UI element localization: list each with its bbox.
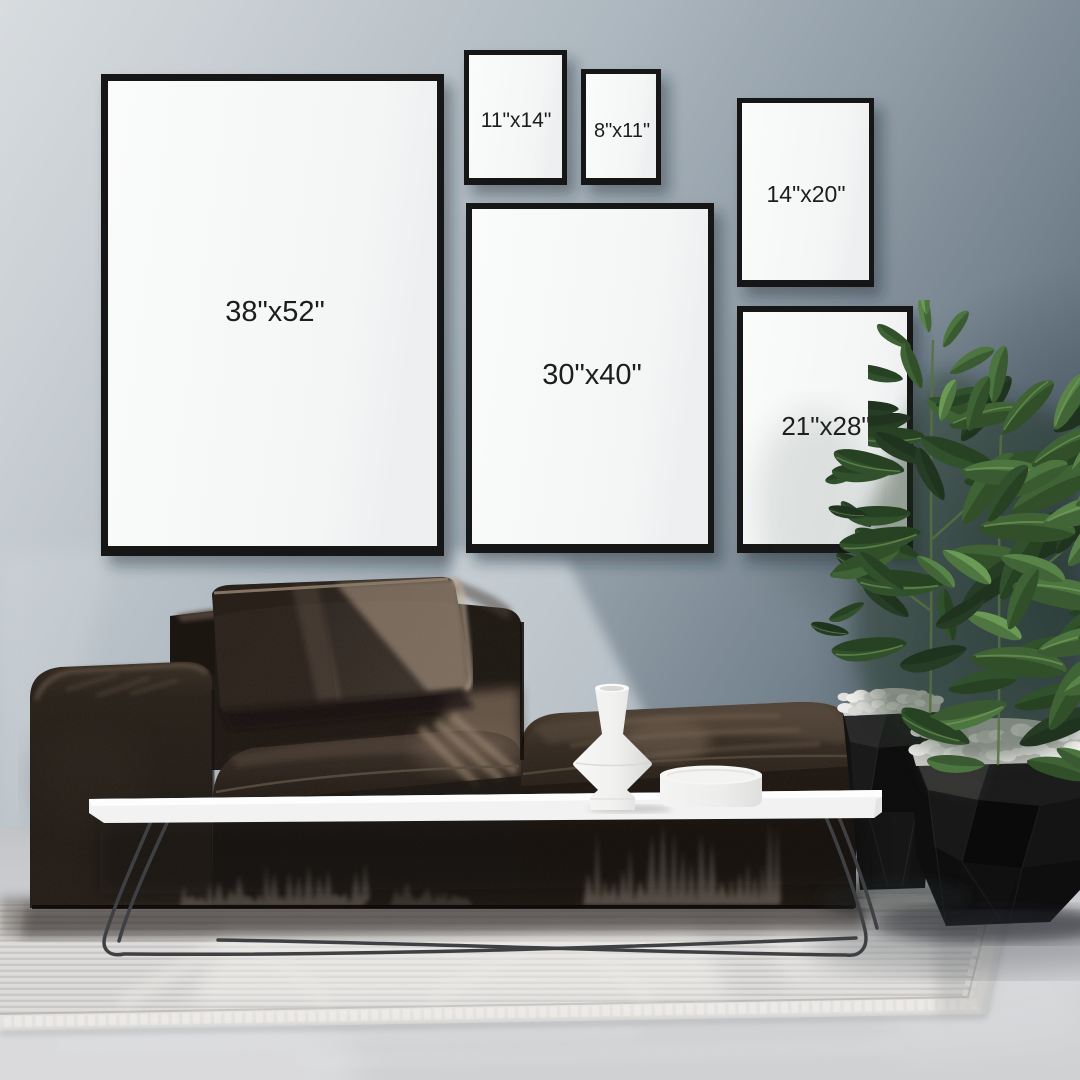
svg-text:30"x40": 30"x40" bbox=[542, 359, 642, 391]
svg-text:11"x14": 11"x14" bbox=[481, 109, 552, 132]
svg-text:14"x20": 14"x20" bbox=[767, 181, 846, 207]
svg-text:38"x52": 38"x52" bbox=[225, 296, 325, 328]
svg-text:8"x11": 8"x11" bbox=[594, 120, 650, 142]
